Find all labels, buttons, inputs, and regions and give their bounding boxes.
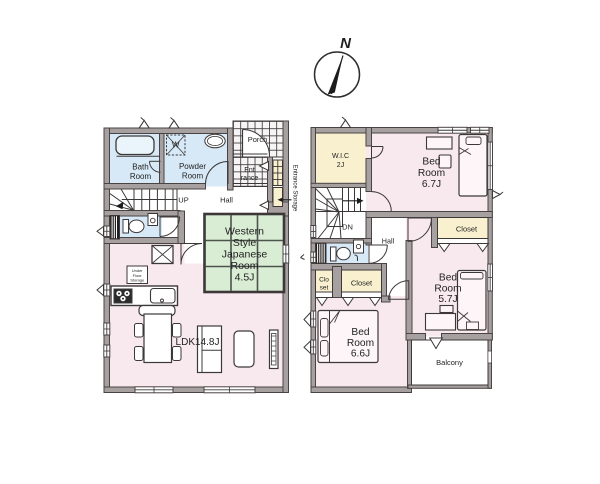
svg-text:Entrance Storage: Entrance Storage xyxy=(292,165,298,212)
svg-text:6.6J: 6.6J xyxy=(351,349,370,360)
svg-text:Closet: Closet xyxy=(351,279,373,288)
svg-text:Room: Room xyxy=(230,260,258,272)
svg-text:2J: 2J xyxy=(337,162,344,169)
svg-text:4.5J: 4.5J xyxy=(235,272,255,284)
svg-text:Hall: Hall xyxy=(220,195,233,204)
svg-text:UP: UP xyxy=(178,195,188,204)
svg-text:Room: Room xyxy=(130,172,152,181)
svg-text:Room: Room xyxy=(347,338,374,349)
svg-text:LDK14.8J: LDK14.8J xyxy=(176,337,220,348)
svg-text:Bed: Bed xyxy=(422,157,440,168)
svg-text:Bed: Bed xyxy=(439,273,457,284)
svg-text:N: N xyxy=(340,35,352,52)
svg-text:Porch: Porch xyxy=(248,135,268,144)
svg-text:Room: Room xyxy=(418,168,445,179)
svg-text:Balcony: Balcony xyxy=(436,358,463,367)
svg-text:5.7J: 5.7J xyxy=(438,294,457,305)
svg-text:DN: DN xyxy=(342,223,353,232)
svg-text:Ent: Ent xyxy=(244,167,255,174)
svg-text:Storage: Storage xyxy=(130,278,145,283)
svg-text:Powder: Powder xyxy=(179,162,206,171)
svg-text:Hall: Hall xyxy=(382,237,395,246)
svg-text:6.7J: 6.7J xyxy=(422,179,441,190)
svg-text:W: W xyxy=(172,141,180,150)
svg-text:Western: Western xyxy=(225,226,264,238)
svg-text:Clo: Clo xyxy=(319,277,329,284)
svg-text:Room: Room xyxy=(434,284,461,295)
svg-text:Japanese: Japanese xyxy=(222,249,268,261)
svg-text:Bed: Bed xyxy=(351,327,369,338)
svg-text:Room: Room xyxy=(182,172,204,181)
svg-text:Closet: Closet xyxy=(456,225,478,234)
svg-text:Bath: Bath xyxy=(132,163,148,172)
svg-text:set: set xyxy=(320,285,329,292)
svg-text:Style: Style xyxy=(233,237,257,249)
svg-text:rance: rance xyxy=(241,175,259,182)
svg-text:W.I.C: W.I.C xyxy=(332,153,349,160)
